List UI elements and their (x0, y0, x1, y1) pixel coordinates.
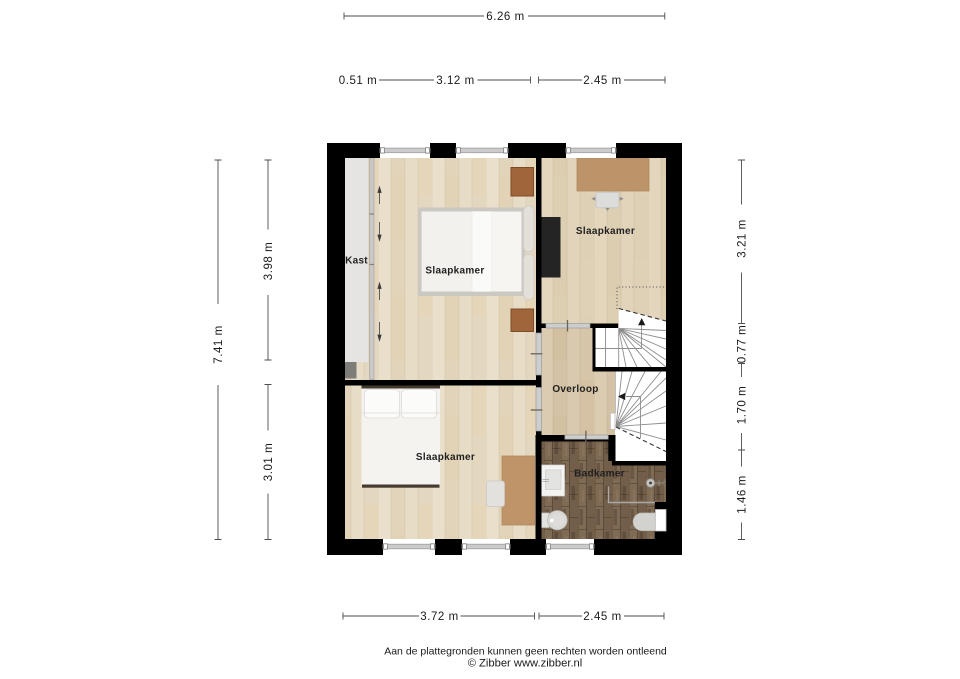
svg-text:Slaapkamer: Slaapkamer (416, 452, 475, 463)
svg-text:Badkamer: Badkamer (574, 469, 625, 480)
svg-text:Aan de plattegronden kunnen ge: Aan de plattegronden kunnen geen rechten… (384, 646, 667, 658)
svg-text:3.21 m: 3.21 m (736, 219, 748, 257)
svg-text:1.70 m: 1.70 m (736, 386, 748, 424)
svg-text:0.77 m: 0.77 m (736, 325, 748, 363)
svg-text:7.41 m: 7.41 m (213, 325, 225, 363)
svg-text:Slaapkamer: Slaapkamer (425, 266, 484, 277)
svg-text:6.26 m: 6.26 m (486, 11, 524, 23)
svg-text:2.45 m: 2.45 m (583, 75, 621, 87)
svg-text:© Zibber www.zibber.nl: © Zibber www.zibber.nl (468, 658, 583, 670)
svg-text:1.46 m: 1.46 m (736, 475, 748, 513)
svg-text:Slaapkamer: Slaapkamer (576, 226, 635, 237)
svg-text:Kast: Kast (345, 256, 368, 267)
svg-text:3.12 m: 3.12 m (436, 75, 474, 87)
svg-text:3.98 m: 3.98 m (263, 242, 275, 280)
svg-text:2.45 m: 2.45 m (583, 611, 621, 623)
svg-text:3.72 m: 3.72 m (420, 611, 458, 623)
svg-text:3.01 m: 3.01 m (263, 443, 275, 481)
svg-text:Overloop: Overloop (552, 384, 598, 395)
svg-text:0.51 m: 0.51 m (339, 75, 377, 87)
